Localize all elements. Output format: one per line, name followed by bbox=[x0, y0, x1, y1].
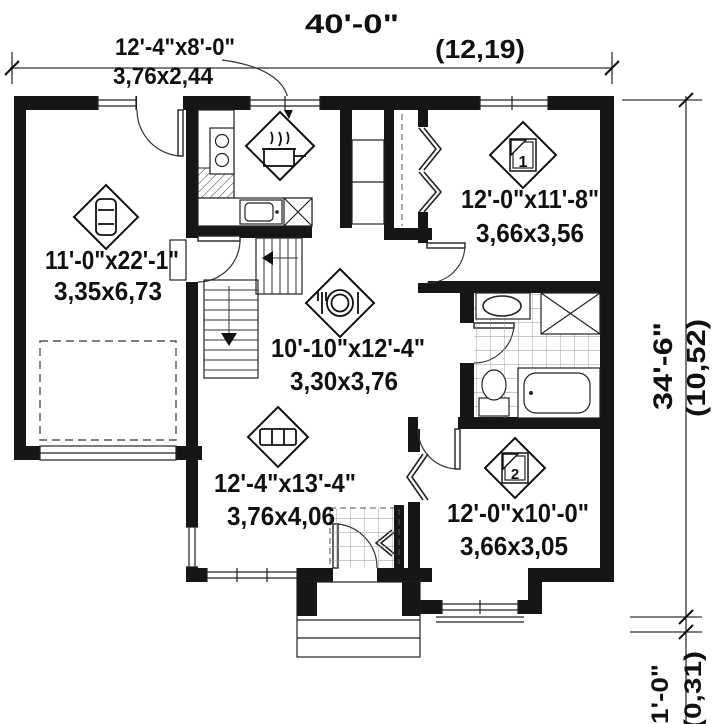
living-size-imperial: 12'-4"x13'-4" bbox=[214, 468, 356, 498]
bedroom2-window bbox=[436, 600, 524, 622]
living-size-metric: 3,76x4,06 bbox=[227, 501, 335, 531]
bathroom-top-wall bbox=[428, 281, 614, 293]
living-marker bbox=[248, 407, 308, 467]
living-front-window bbox=[207, 568, 297, 582]
overall-depth-metric: (10,52) bbox=[681, 319, 711, 417]
kitchen-size-metric: 3,76x2,44 bbox=[113, 63, 214, 90]
bathroom-fixtures bbox=[474, 293, 600, 418]
bedroom1-number: 1 bbox=[519, 154, 528, 171]
kitchen-window bbox=[250, 96, 320, 110]
overall-width-imperial: 40'-0" bbox=[305, 9, 399, 39]
garage-service-door bbox=[137, 96, 183, 156]
dining-size-imperial: 10'-10"x12'-4" bbox=[271, 333, 425, 363]
bedroom2-number: 2 bbox=[511, 466, 519, 483]
bedroom1-marker: 1 bbox=[490, 122, 556, 188]
pantry-left-wall bbox=[340, 110, 352, 228]
bedroom2-size-imperial: 12'-0"x10'-0" bbox=[447, 498, 589, 528]
bedroom2-size-metric: 3,66x3,05 bbox=[460, 531, 568, 561]
floor-plan-drawing: 1 2 40'-0" (12,19) 12'-4"x8'-0" 3,76x2,4… bbox=[0, 0, 720, 724]
porch-step-imperial: 1'-0" bbox=[647, 664, 674, 724]
garage-size-metric: 3,35x6,73 bbox=[54, 276, 162, 306]
pantry-right-wall bbox=[384, 110, 394, 233]
dining-size-metric: 3,30x3,76 bbox=[290, 366, 398, 396]
kitchen-marker bbox=[246, 112, 314, 180]
porch-post-right bbox=[402, 582, 420, 616]
left-exterior-wall bbox=[14, 96, 26, 460]
garage-overhead-door bbox=[40, 341, 176, 460]
bathtub-icon bbox=[518, 368, 600, 418]
bedroom2-marker: 2 bbox=[485, 438, 545, 498]
overall-depth-imperial: 34'-6" bbox=[648, 322, 678, 410]
toilet-icon bbox=[479, 370, 509, 416]
garage-size-imperial: 11'-0"x22'-1" bbox=[45, 245, 179, 275]
floor-plan-page: 1 2 40'-0" (12,19) 12'-4"x8'-0" 3,76x2,4… bbox=[0, 0, 720, 724]
bedroom1-window bbox=[480, 96, 548, 110]
kitchen-size-imperial: 12'-4"x8'-0" bbox=[115, 34, 235, 61]
refrigerator-icon bbox=[352, 140, 384, 224]
entry-tile-floor bbox=[330, 508, 394, 568]
right-exterior-wall bbox=[600, 283, 614, 582]
bedroom1-size-imperial: 12'-0"x11'-8" bbox=[461, 184, 599, 214]
bedroom1-size-metric: 3,66x3,56 bbox=[476, 218, 584, 248]
dining-marker bbox=[306, 269, 374, 337]
porch-post-left bbox=[297, 582, 317, 616]
living-side-window bbox=[186, 527, 198, 567]
bedroom2-closet-bifold-doors bbox=[407, 454, 428, 500]
stove-icon bbox=[210, 128, 234, 174]
dishwasher-icon bbox=[284, 198, 312, 226]
entry-area bbox=[330, 508, 394, 568]
kitchen-sink-icon bbox=[240, 200, 282, 224]
bedroom2-door bbox=[418, 417, 460, 469]
bedroom1-door bbox=[427, 243, 465, 283]
garage-door-swing-area bbox=[40, 341, 176, 440]
garage-marker bbox=[74, 185, 138, 249]
bedroom1-closet-bifold-doors bbox=[402, 114, 441, 226]
garage-to-house-door bbox=[170, 236, 240, 282]
garage-window bbox=[98, 96, 136, 110]
overall-width-metric: (12,19) bbox=[435, 34, 525, 64]
bathroom-vanity-sink-icon bbox=[476, 293, 530, 319]
shower-icon bbox=[541, 293, 600, 334]
bedroom1-right-wall bbox=[600, 96, 614, 293]
porch-step-metric: (0,31) bbox=[680, 651, 707, 724]
porch bbox=[297, 582, 420, 657]
